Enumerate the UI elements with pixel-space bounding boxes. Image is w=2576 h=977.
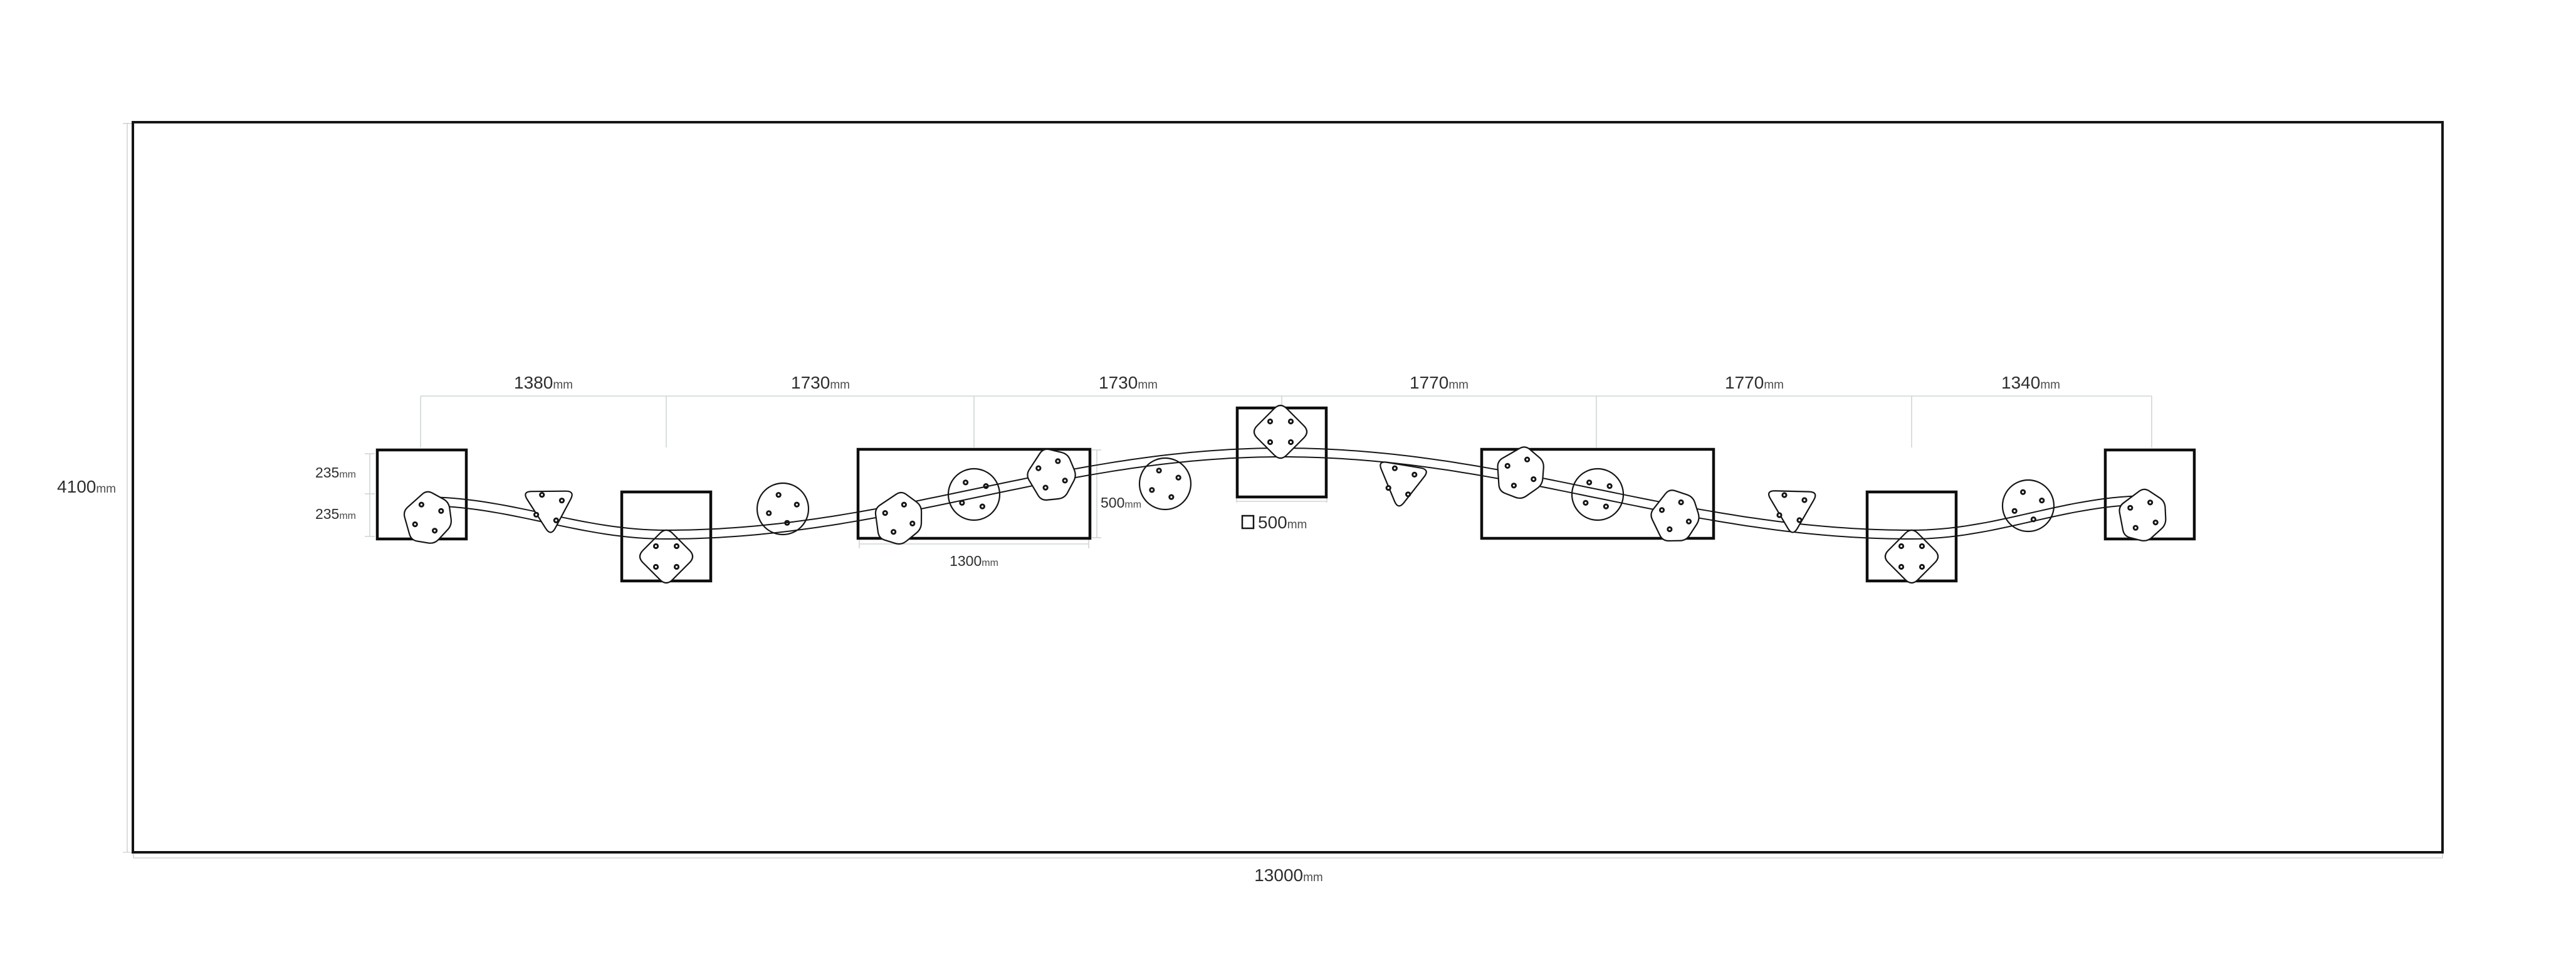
stepper-dot-center xyxy=(440,510,442,512)
stepper-dot-center xyxy=(1394,468,1396,469)
stepper-dot-center xyxy=(1900,545,1902,547)
stepper-dot-center xyxy=(1778,514,1780,516)
stepper-dot-center xyxy=(2033,518,2034,520)
stepper-dot-center xyxy=(1783,494,1785,496)
site-plan-canvas: 1380mm1730mm1730mm1770mm1770mm1340mm4100… xyxy=(0,0,2576,977)
stepper-dot-center xyxy=(903,504,905,506)
stepper-dot-center xyxy=(1680,501,1682,503)
stepper-dot-center xyxy=(561,499,563,501)
legend-square-icon xyxy=(1242,516,1254,528)
stepper-dot-center xyxy=(1803,499,1805,501)
stepper-dot-center xyxy=(1269,421,1271,422)
stepper-dot-center xyxy=(655,545,657,547)
top-dimension-label-3: 1770mm xyxy=(1410,373,1469,392)
stepper-dot-center xyxy=(421,504,422,506)
top-dimension-label-2: 1730mm xyxy=(1099,373,1158,392)
stepper-dot-center xyxy=(1798,519,1800,521)
stepper-dot-center xyxy=(1900,566,1902,568)
bracket-1300-label: 1300mm xyxy=(950,553,998,569)
stepper-dot-center xyxy=(1688,521,1690,523)
stepper-dot-center xyxy=(1151,489,1153,491)
stepper-dot-center xyxy=(2041,499,2043,501)
stepper-dot-center xyxy=(1269,441,1271,443)
stepper-dot-center xyxy=(1037,468,1039,469)
stepper-triangle xyxy=(1378,462,1427,508)
height-dimension-label: 4100mm xyxy=(57,477,116,496)
stepper-dot-center xyxy=(2149,501,2151,503)
stepper-dot-center xyxy=(535,514,537,516)
stepper-dot-center xyxy=(1045,487,1047,489)
bracket-500-label: 500mm xyxy=(1101,494,1141,511)
stepper-dot-center xyxy=(2014,510,2016,512)
stepper-dot-center xyxy=(1588,481,1590,483)
stepper-dot-center xyxy=(1178,477,1180,479)
bracket-235-label-0: 235mm xyxy=(315,464,356,481)
stepper-dot-center xyxy=(1921,566,1923,568)
stepper-dot-center xyxy=(1507,465,1509,467)
stepper-dot-center xyxy=(1584,502,1586,504)
stepper-dot-center xyxy=(1290,441,1292,443)
stepper-triangle-outline xyxy=(1378,462,1427,508)
stepper-circle xyxy=(2003,480,2054,531)
stepper-dot-center xyxy=(2155,521,2157,523)
stepper-dot-center xyxy=(796,504,798,506)
stepper-circle xyxy=(757,483,809,535)
stepper-dot-center xyxy=(961,502,963,504)
legend-label: 500mm xyxy=(1258,513,1307,532)
stepper-dot-center xyxy=(2129,507,2131,509)
site-plan-page: 1380mm1730mm1730mm1770mm1770mm1340mm4100… xyxy=(0,0,2576,977)
stepper-dot-center xyxy=(1064,479,1066,481)
stepper-dot-center xyxy=(884,512,886,514)
top-dimension-label-0: 1380mm xyxy=(514,373,573,392)
stepper-dot-center xyxy=(1668,528,1670,530)
stepper-dot-center xyxy=(1388,487,1390,489)
width-dimension-label: 13000mm xyxy=(1254,865,1323,885)
stepper-dot-center xyxy=(1661,509,1663,511)
top-dimension-label-5: 1340mm xyxy=(2001,373,2060,392)
stepper-triangle-outline xyxy=(1769,488,1818,534)
stepper-dot-center xyxy=(1413,474,1415,476)
stepper-dot-center xyxy=(1170,496,1172,498)
stepper-circle-outline xyxy=(2003,480,2054,531)
stepper-dot-center xyxy=(1605,506,1607,508)
stepper-dot-center xyxy=(414,523,416,525)
stepper-dot-center xyxy=(676,545,678,547)
stepper-dot-center xyxy=(911,523,913,525)
stepper-dot-center xyxy=(1532,478,1534,480)
stepper-dot-center xyxy=(778,494,780,496)
top-dimension-label-4: 1770mm xyxy=(1725,373,1784,392)
stepper-dot-center xyxy=(655,566,657,568)
stepper-dot-center xyxy=(1921,545,1923,547)
bracket-235-label-1: 235mm xyxy=(315,506,356,522)
stepper-dot-center xyxy=(1057,460,1059,462)
stepper-dot-center xyxy=(1609,485,1611,487)
stepper-dot-center xyxy=(893,531,894,533)
stepper-dot-center xyxy=(555,520,557,521)
stepper-triangle xyxy=(1769,488,1818,534)
stepper-dot-center xyxy=(1526,459,1528,461)
stepper-dot-center xyxy=(2135,527,2137,529)
stepper-dot-center xyxy=(676,566,678,568)
stepper-circle-outline xyxy=(757,483,809,535)
stepper-dot-center xyxy=(434,530,436,531)
stepper-dot-center xyxy=(1407,493,1409,495)
stepper-dot-center xyxy=(965,481,966,483)
stepper-dot-center xyxy=(1513,484,1515,486)
stepper-dot-center xyxy=(982,506,983,508)
stepper-dot-center xyxy=(2022,491,2024,493)
top-dimension-label-1: 1730mm xyxy=(791,373,850,392)
stepper-dot-center xyxy=(768,512,770,514)
stepper-dot-center xyxy=(1290,421,1292,422)
stepper-dot-center xyxy=(1158,469,1160,471)
stepper-dot-center xyxy=(541,494,543,496)
